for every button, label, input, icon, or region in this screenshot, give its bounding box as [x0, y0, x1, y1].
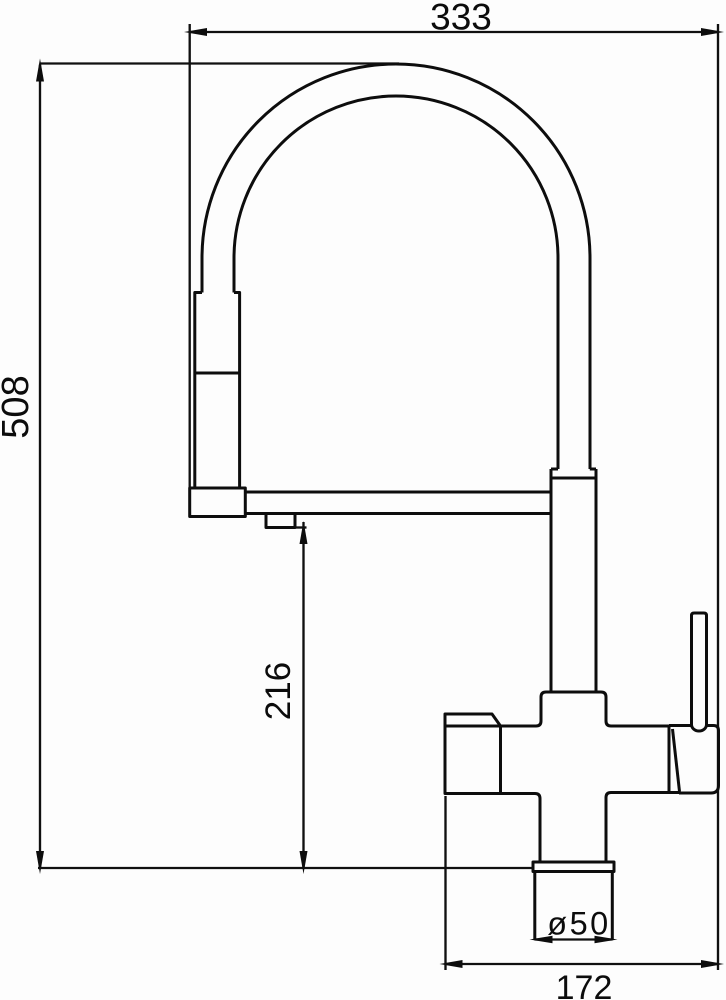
svg-text:172: 172: [556, 969, 613, 1000]
svg-text:508: 508: [0, 375, 37, 438]
svg-text:333: 333: [430, 0, 492, 38]
svg-text:216: 216: [259, 662, 298, 720]
svg-text:ø50: ø50: [547, 906, 611, 942]
